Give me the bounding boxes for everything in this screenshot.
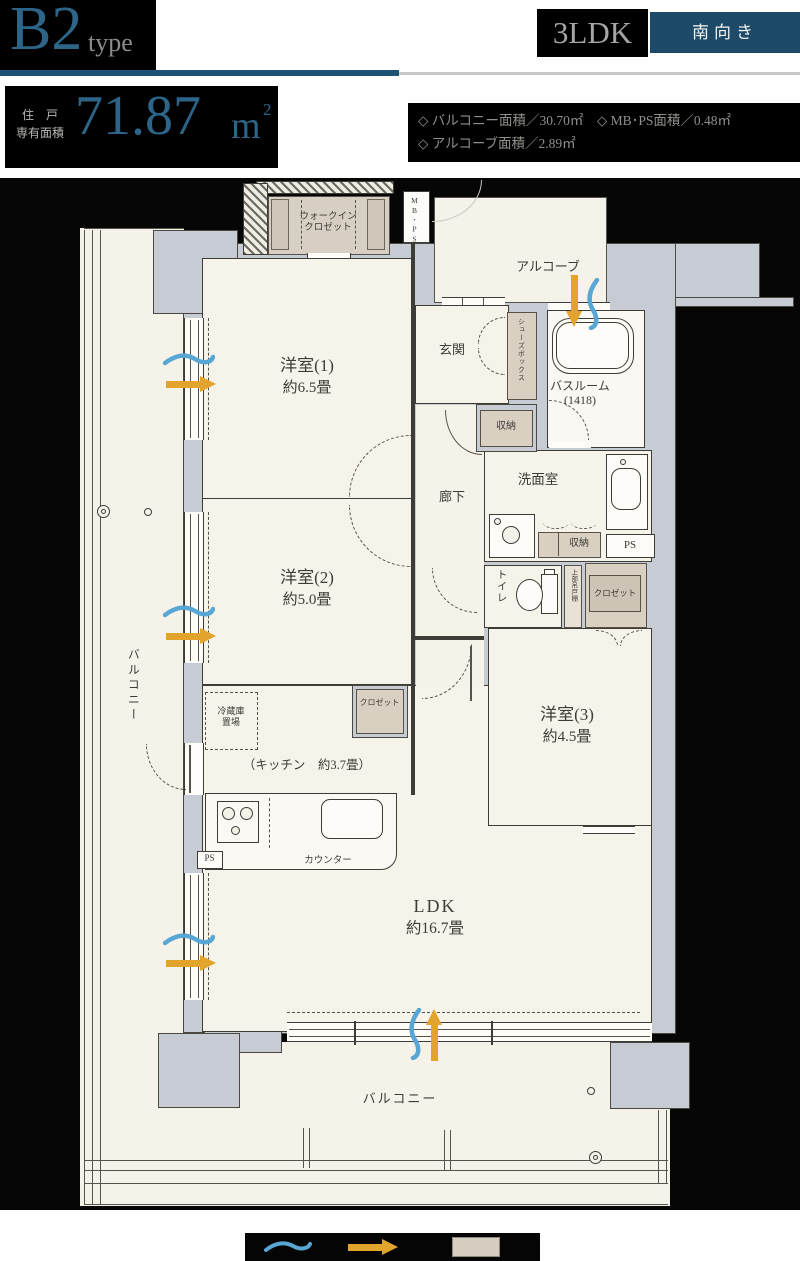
sill-tick-1 bbox=[462, 298, 463, 305]
floorplan-canvas: MB･PS ウォークイン クロゼット シューズボックス 収納 bbox=[0, 178, 800, 1210]
label-bathroom: バスルーム (1418) bbox=[538, 379, 622, 408]
drain-left-outer bbox=[97, 505, 110, 518]
toilet-bowl bbox=[516, 579, 543, 611]
kitchen-counter: カウンター bbox=[205, 793, 397, 870]
label-western3-name: 洋室(3) bbox=[519, 705, 615, 725]
closet-western2-label: クロゼット bbox=[357, 698, 402, 708]
label-alcove: アルコーブ bbox=[505, 259, 591, 275]
pillar-bottom-right bbox=[610, 1042, 690, 1109]
balcony-rail-bottom-3 bbox=[84, 1183, 668, 1184]
stove bbox=[217, 801, 259, 843]
label-balcony-bottom: バルコニー bbox=[355, 1091, 445, 1107]
closet-western3-label: クロゼット bbox=[590, 588, 640, 598]
room-western3 bbox=[488, 628, 652, 826]
airflow-arrow-icon-western1 bbox=[166, 376, 216, 393]
vanity-counter bbox=[606, 454, 648, 530]
walkin-side-panel-left bbox=[271, 199, 289, 250]
shoes-box: シューズボックス bbox=[507, 312, 537, 400]
airflow-wave-icon-entrance bbox=[586, 278, 602, 330]
balcony-rail-left-3 bbox=[100, 230, 101, 1204]
ps-kitchen: PS bbox=[197, 851, 223, 869]
upper-cabinet-label: 上部吊戸棚 bbox=[569, 569, 577, 602]
fridge-space: 冷蔵庫 置場 bbox=[205, 692, 258, 750]
drain-bottom-outer bbox=[589, 1151, 602, 1164]
layout-badge: 3LDK bbox=[537, 9, 648, 57]
balcony-partition-mark-1 bbox=[303, 1128, 310, 1168]
label-hallway: 廊下 bbox=[430, 489, 474, 505]
common-area-top-right bbox=[675, 243, 760, 299]
stove-burner-2 bbox=[240, 807, 253, 820]
drain-bottom-inner bbox=[593, 1155, 598, 1160]
airflow-arrow-icon-entrance bbox=[566, 275, 583, 327]
storage-entrance: 収納 bbox=[480, 410, 533, 447]
balcony-rail-bottom-2 bbox=[84, 1170, 668, 1171]
bathroom-door-gap bbox=[549, 441, 591, 448]
window-ldkb-line1 bbox=[289, 1029, 650, 1030]
legend-arrow-icon bbox=[348, 1239, 400, 1256]
sill-tick-2 bbox=[483, 298, 484, 305]
kitchen-service-door bbox=[184, 743, 204, 795]
counter-label: カウンター bbox=[293, 856, 363, 867]
airflow-wave-icon-western2 bbox=[163, 604, 215, 620]
washroom-fold-arc-1 bbox=[543, 516, 569, 529]
balcony-rail-right-1 bbox=[658, 1110, 659, 1183]
stove-burner-1 bbox=[222, 807, 235, 820]
direction-badge: 南向き bbox=[650, 12, 800, 53]
toilet-tank bbox=[541, 574, 558, 614]
airflow-arrow-icon-ldk-bottom bbox=[426, 1009, 443, 1061]
washer-space bbox=[489, 514, 535, 558]
label-ldk-size: 約16.7畳 bbox=[380, 920, 490, 939]
plan-type-box: B2 type bbox=[0, 0, 156, 70]
balcony-rail-left-2 bbox=[92, 230, 93, 1204]
label-western2-size: 約5.0畳 bbox=[257, 591, 357, 609]
ps-kitchen-label: PS bbox=[198, 853, 221, 864]
counter-divider bbox=[269, 798, 270, 848]
area-details-box: ◇ バルコニー面積／30.70㎡ ◇ MB･PS面積／0.48㎡ ◇ アルコーブ… bbox=[408, 103, 800, 162]
pillar-bottom-left-c bbox=[158, 1033, 240, 1108]
plan-type-suffix: type bbox=[88, 28, 133, 58]
balcony-rail-left-1 bbox=[84, 230, 85, 1204]
title-underline-gray bbox=[399, 72, 800, 75]
area-box: 住 戸 専有面積 71.87 m 2 bbox=[5, 86, 278, 168]
fridge-label: 冷蔵庫 置場 bbox=[208, 706, 254, 728]
area-label-line1: 住 戸 bbox=[9, 106, 71, 124]
shoes-box-label: シューズボックス bbox=[517, 318, 525, 382]
label-western1-size: 約6.5畳 bbox=[257, 379, 357, 397]
area-unit-sup: 2 bbox=[263, 100, 272, 120]
mbps-shaft: MB･PS bbox=[403, 191, 430, 243]
balcony-partition-mark-2 bbox=[444, 1130, 451, 1170]
label-kitchen: （キッチン 約3.7畳） bbox=[227, 758, 387, 773]
label-entrance: 玄関 bbox=[433, 342, 471, 358]
faucet-bottom bbox=[587, 1087, 595, 1095]
walkin-side-panel-right bbox=[367, 199, 385, 250]
legend-bar bbox=[245, 1233, 540, 1261]
kitchen-door-leaf bbox=[189, 745, 191, 793]
wall-ldk-entry bbox=[415, 636, 484, 640]
window-ldkb-tick2 bbox=[491, 1021, 493, 1045]
washer-valve bbox=[494, 518, 501, 525]
window-ldk-bottom bbox=[287, 1022, 652, 1042]
walkin-closet: ウォークイン クロゼット bbox=[268, 196, 390, 255]
balcony-rail-top-edge bbox=[84, 228, 184, 229]
balcony-rail-right-2 bbox=[666, 1110, 667, 1183]
mbps-label: MB･PS bbox=[410, 196, 419, 245]
label-balcony-left: バルコニー bbox=[126, 648, 140, 723]
label-western3-size: 約4.5畳 bbox=[522, 728, 612, 746]
label-western1-name: 洋室(1) bbox=[254, 356, 360, 376]
hatched-wall-left bbox=[243, 183, 268, 255]
washer-drum bbox=[502, 526, 520, 544]
area-label: 住 戸 専有面積 bbox=[9, 106, 71, 142]
layout-badge-label: 3LDK bbox=[553, 15, 632, 50]
label-western2-name: 洋室(2) bbox=[254, 568, 360, 588]
toilet-button bbox=[544, 569, 555, 575]
legend-storage-swatch bbox=[452, 1237, 500, 1257]
entrance-door-sill bbox=[442, 297, 505, 306]
faucet-left bbox=[144, 508, 152, 516]
airflow-wave-icon-western1 bbox=[163, 352, 215, 368]
common-area-top-right-ledge bbox=[675, 297, 794, 307]
closet-western3: クロゼット bbox=[585, 563, 647, 628]
stove-burner-3 bbox=[231, 826, 240, 835]
balcony-rail-bottom-1 bbox=[84, 1160, 668, 1161]
storage-washroom: 収納 bbox=[538, 532, 601, 558]
closet-western3-inner: クロゼット bbox=[589, 575, 641, 612]
label-ldk-name: LDK bbox=[385, 896, 485, 918]
direction-badge-label: 南向き bbox=[692, 23, 758, 42]
hatched-wall-top bbox=[256, 181, 394, 194]
airflow-arrow-icon-ldk-left bbox=[166, 955, 216, 972]
airflow-wave-icon-ldk-bottom bbox=[408, 1008, 424, 1060]
storage-washroom-label: 収納 bbox=[559, 538, 599, 550]
ldk-window-curtain-line bbox=[287, 1012, 640, 1013]
plan-type-label: B2 bbox=[10, 0, 82, 65]
legend-wave-icon bbox=[264, 1240, 312, 1254]
floorplan-page: { "header": { "plan_type": "B2", "plan_t… bbox=[0, 0, 800, 1261]
walkin-label: ウォークイン クロゼット bbox=[290, 212, 366, 235]
vanity-sink bbox=[611, 468, 641, 510]
area-value: 71.87 bbox=[75, 84, 201, 148]
upper-cabinet: 上部吊戸棚 bbox=[564, 565, 582, 628]
ps-washroom: PS bbox=[606, 534, 655, 558]
balcony-rail-bottom-4 bbox=[84, 1204, 668, 1205]
area-detail-line2: ◇ アルコーブ面積／2.89㎡ bbox=[418, 133, 800, 156]
window-ldkb-line2 bbox=[289, 1036, 650, 1037]
title-underline-blue bbox=[0, 70, 399, 76]
area-unit: m bbox=[231, 104, 261, 148]
vanity-faucet bbox=[620, 459, 626, 465]
window-ldkb-tick1 bbox=[354, 1021, 356, 1045]
western3-sliding-door bbox=[583, 826, 635, 834]
western3-door-leaf bbox=[470, 646, 472, 701]
drain-left-inner bbox=[101, 509, 106, 514]
label-washroom: 洗面室 bbox=[500, 472, 576, 488]
wall-hall-vertical bbox=[411, 242, 415, 795]
area-detail-line1: ◇ バルコニー面積／30.70㎡ ◇ MB･PS面積／0.48㎡ bbox=[418, 110, 800, 133]
area-label-line2: 専有面積 bbox=[9, 124, 71, 142]
storage-entrance-label: 収納 bbox=[481, 421, 531, 433]
closet-western2: クロゼット bbox=[356, 689, 404, 734]
airflow-wave-icon-ldk-left bbox=[163, 932, 215, 948]
kitchen-sink bbox=[321, 799, 383, 839]
airflow-arrow-icon-western2 bbox=[166, 628, 216, 645]
pillar-bottom-left-a bbox=[183, 997, 204, 1033]
ps-washroom-label: PS bbox=[607, 539, 653, 552]
label-toilet: トイレ bbox=[494, 569, 507, 604]
washroom-fold-arc-2 bbox=[571, 516, 597, 529]
